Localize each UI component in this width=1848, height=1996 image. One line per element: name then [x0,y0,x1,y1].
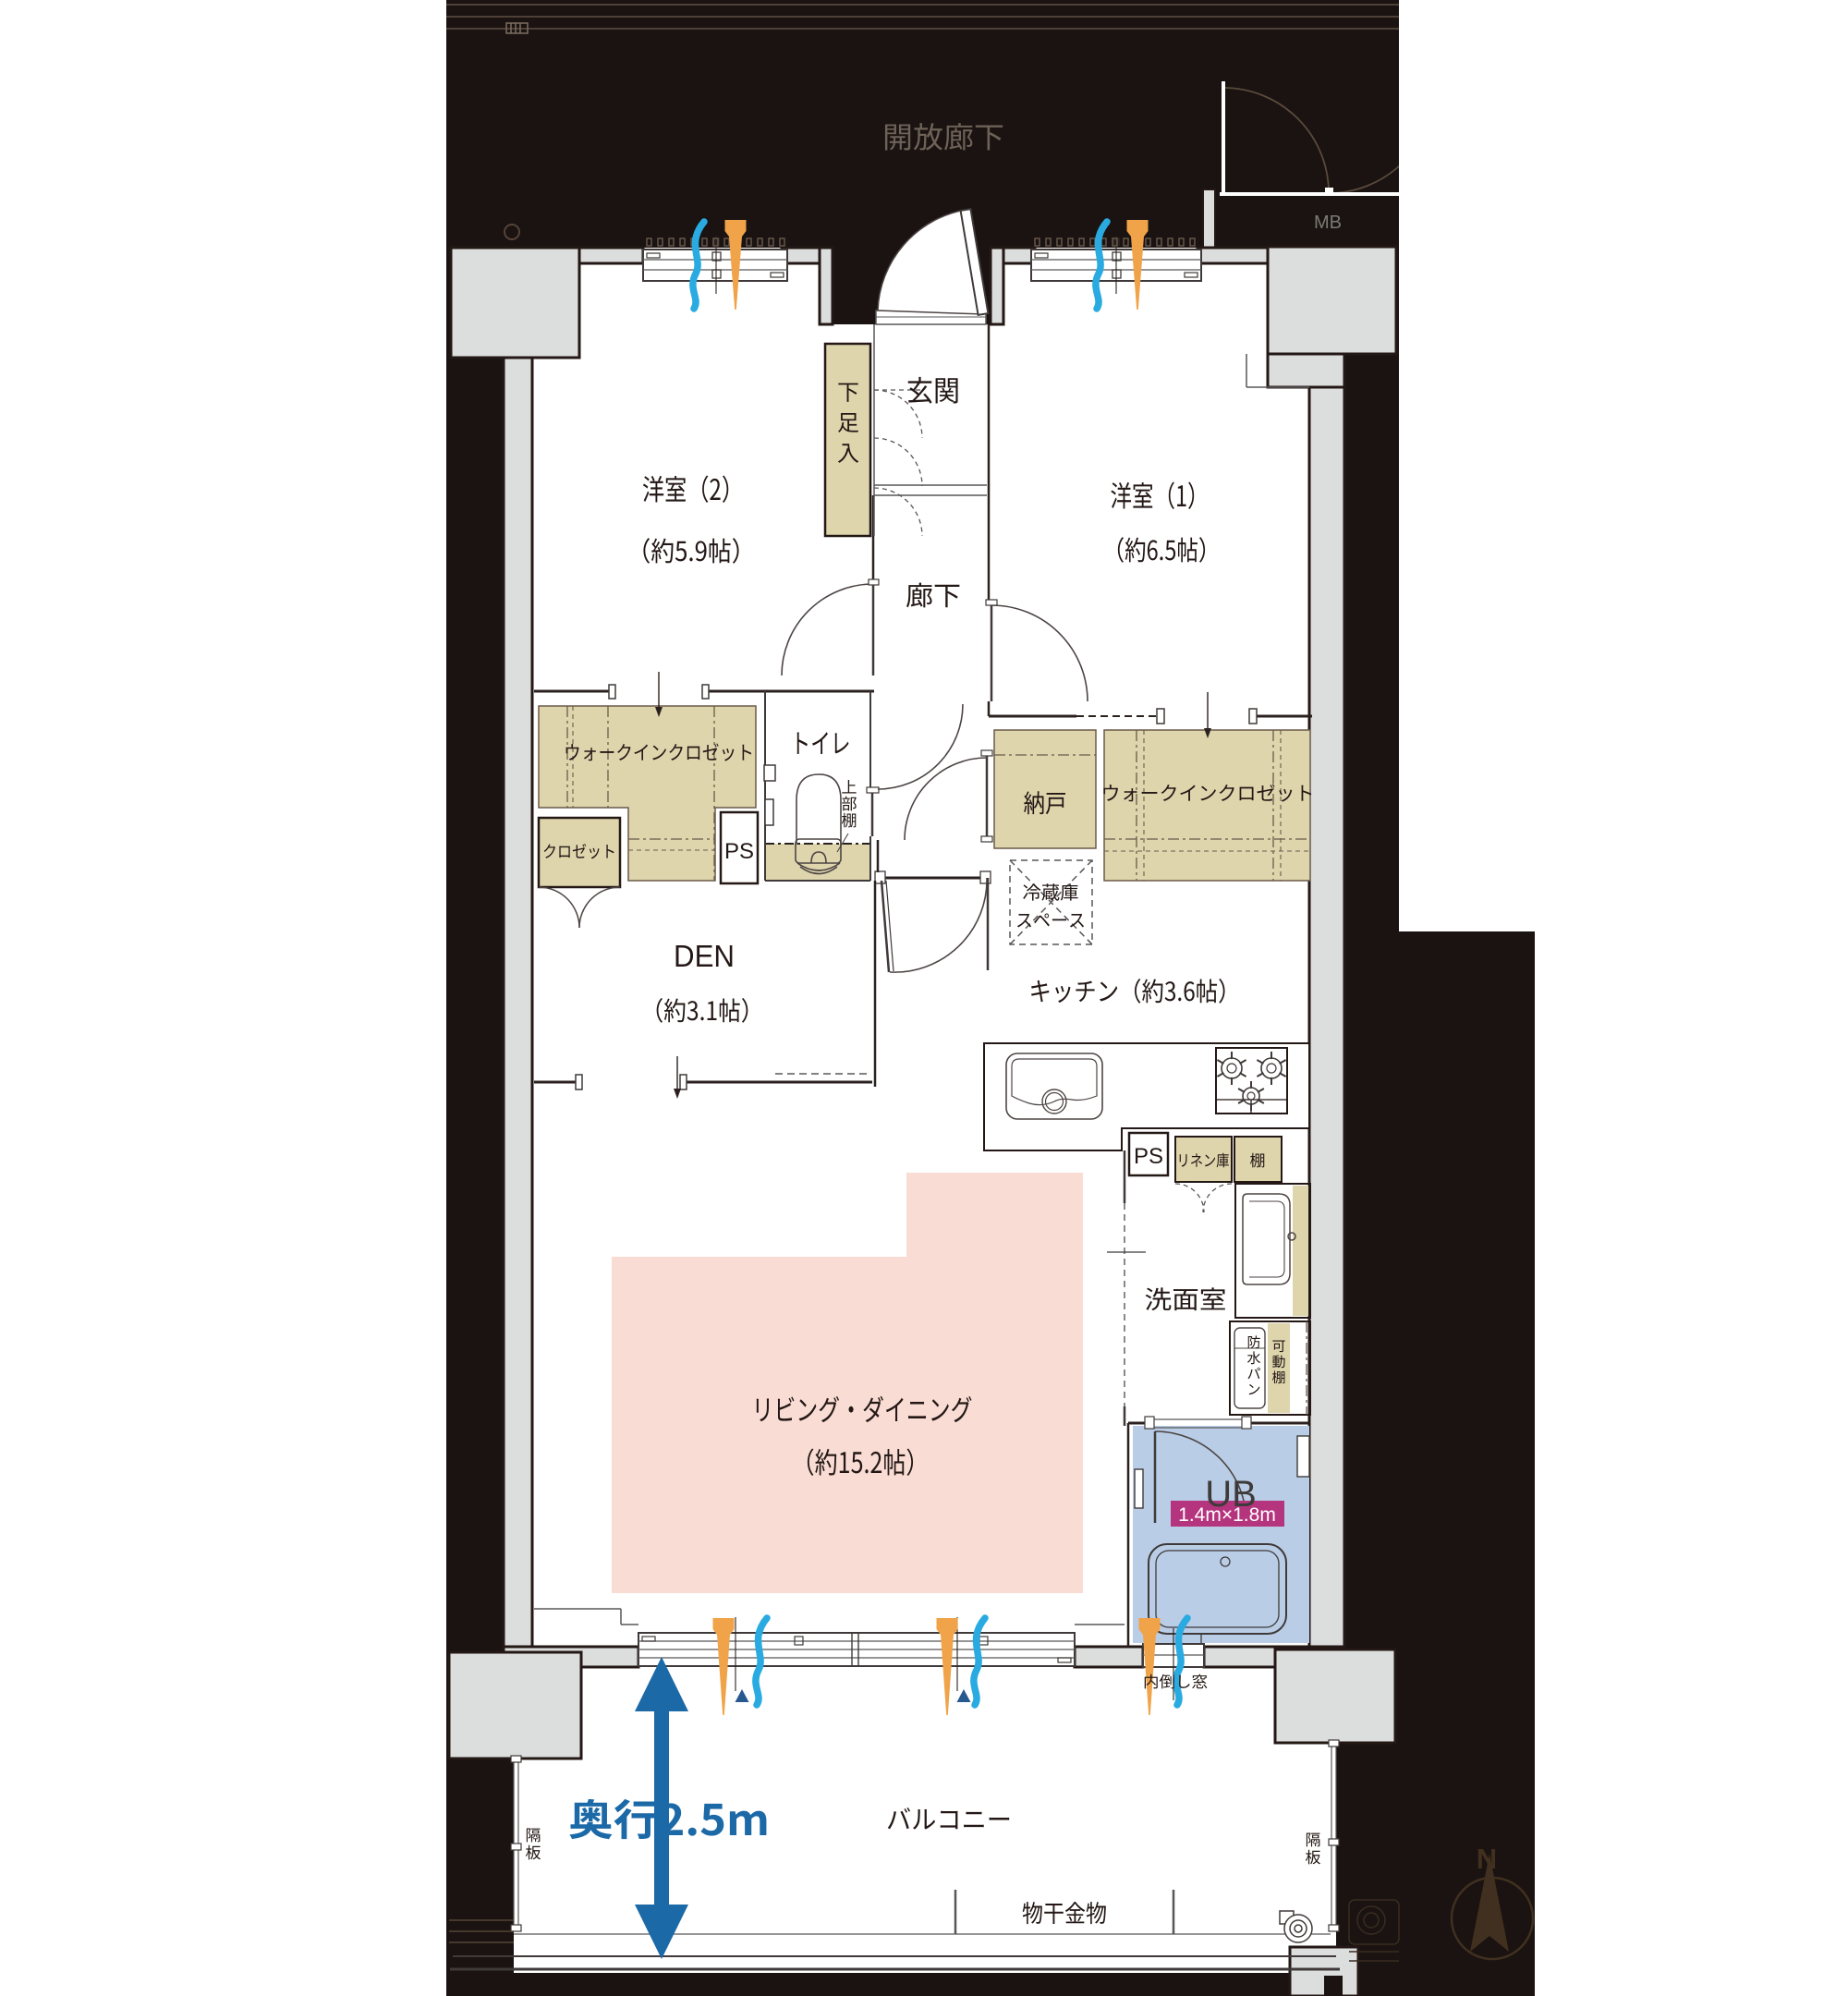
svg-text:UB: UB [1205,1474,1257,1515]
svg-text:PS: PS [724,839,754,864]
svg-text:PS: PS [1134,1144,1163,1169]
svg-text:DEN: DEN [674,939,735,973]
svg-text:N: N [1477,1843,1497,1875]
svg-text:MB: MB [1314,213,1342,233]
